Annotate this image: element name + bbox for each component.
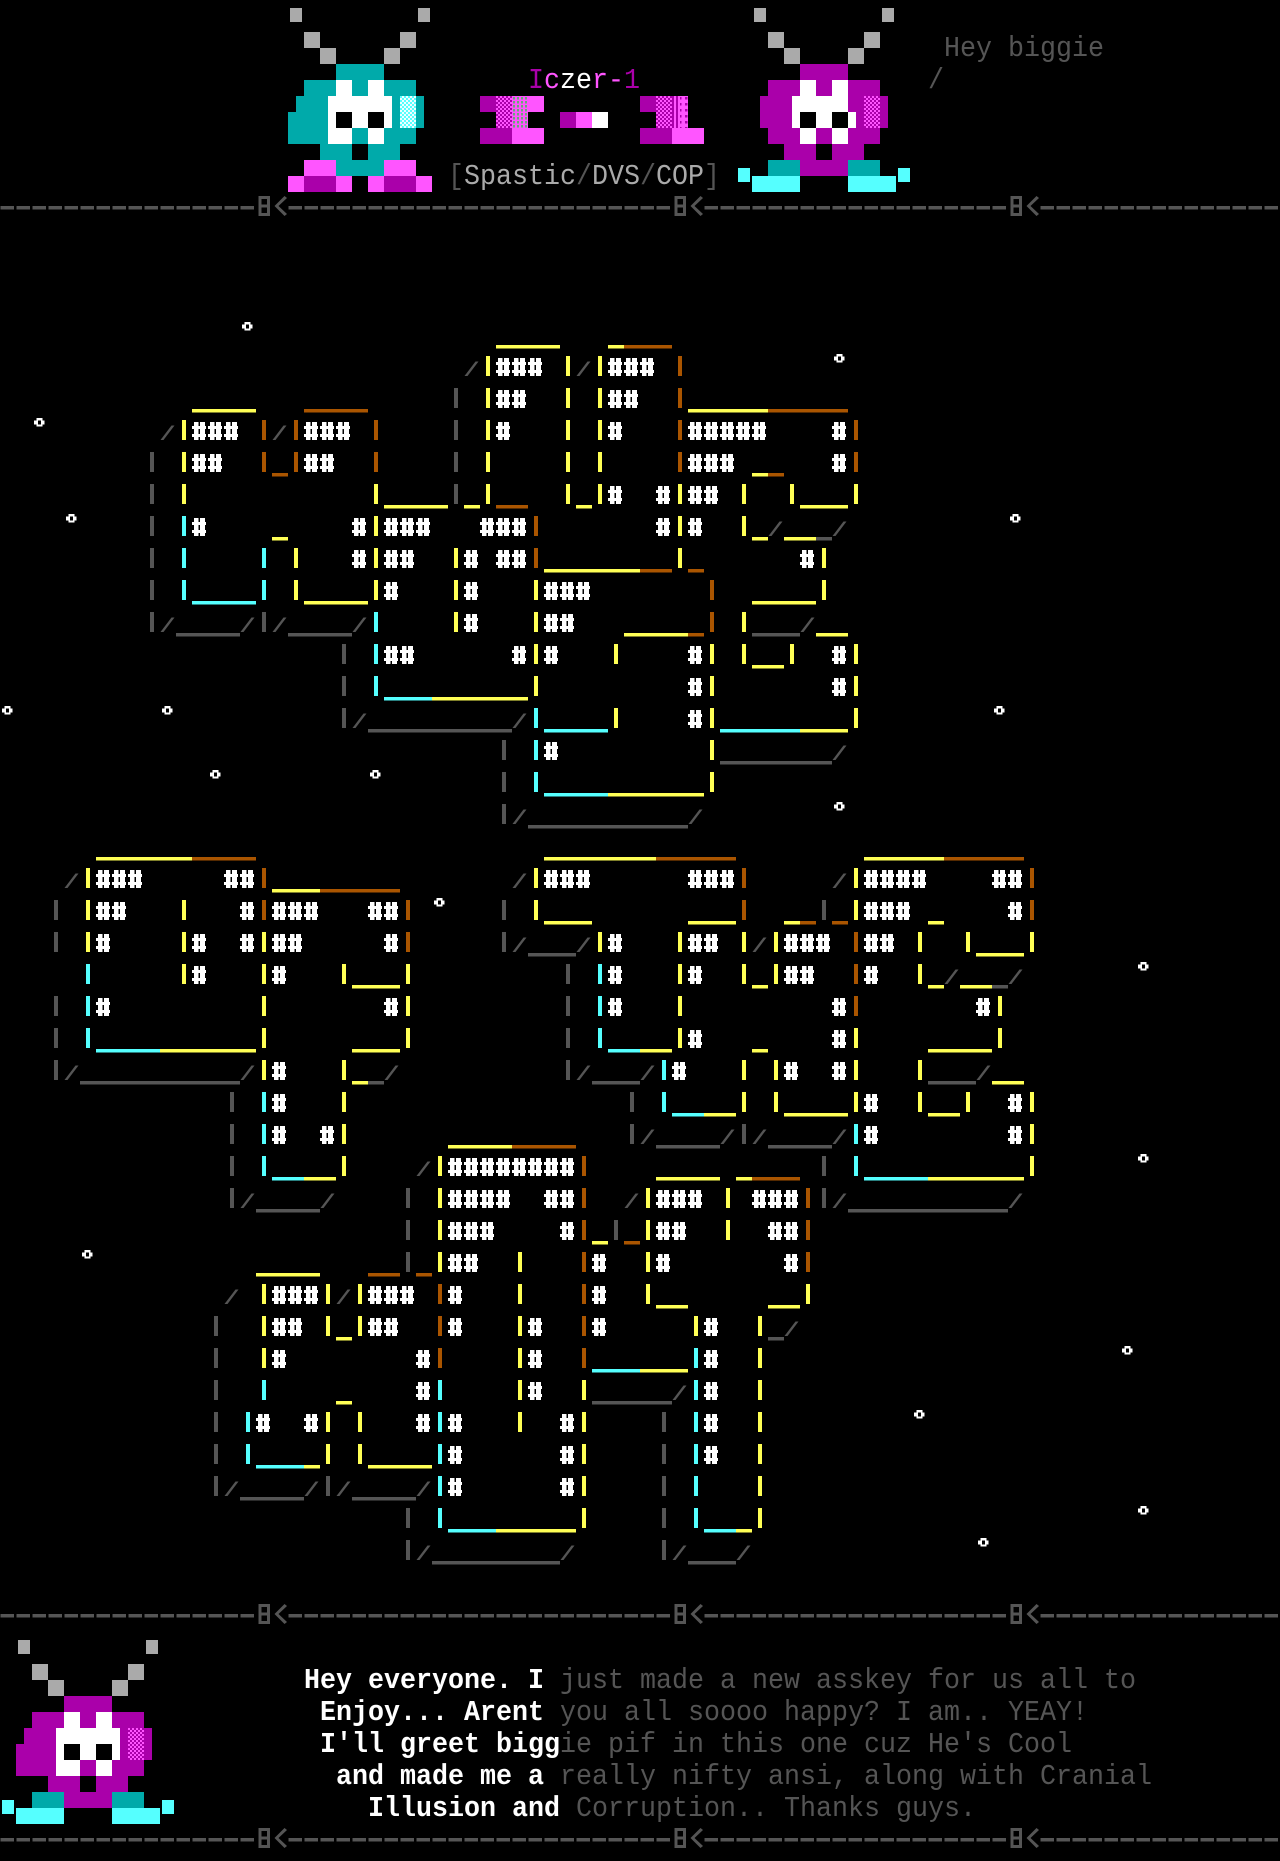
svg-text:really nifty ansi, along with: really nifty ansi, along with Cranial (560, 1760, 1152, 1793)
svg-text:Corruption.. Thanks guys.: Corruption.. Thanks guys. (576, 1792, 976, 1825)
svg-text:Enjoy... Arent: Enjoy... Arent (320, 1696, 544, 1729)
svg-text:]: ] (704, 160, 720, 193)
svg-text:1: 1 (624, 64, 640, 97)
svg-text:Hey biggie: Hey biggie (944, 32, 1104, 65)
svg-text:Illusion and: Illusion and (368, 1792, 560, 1825)
svg-text:I: I (528, 64, 544, 97)
svg-text:and made me a: and made me a (336, 1760, 544, 1793)
svg-text:c: c (544, 64, 560, 97)
svg-text:r-: r- (592, 64, 624, 97)
svg-text:[: [ (448, 160, 464, 193)
svg-text:ie pif in this one cuz He's Co: ie pif in this one cuz He's Cool (560, 1728, 1072, 1761)
svg-text:COP: COP (656, 160, 704, 193)
svg-text:just made a new asskey for us: just made a new asskey for us all to (560, 1664, 1136, 1697)
svg-text:ze: ze (560, 64, 592, 97)
svg-text:Hey everyone. I: Hey everyone. I (304, 1664, 544, 1697)
svg-text:Spastic: Spastic (464, 160, 576, 193)
svg-text:/: / (640, 160, 656, 193)
svg-text:DVS: DVS (592, 160, 640, 193)
svg-text:/: / (928, 64, 944, 97)
svg-text:you all soooo happy? I am.. YE: you all soooo happy? I am.. YEAY! (560, 1696, 1088, 1729)
svg-text:/: / (576, 160, 592, 193)
svg-text:I'll greet bigg: I'll greet bigg (320, 1728, 560, 1761)
